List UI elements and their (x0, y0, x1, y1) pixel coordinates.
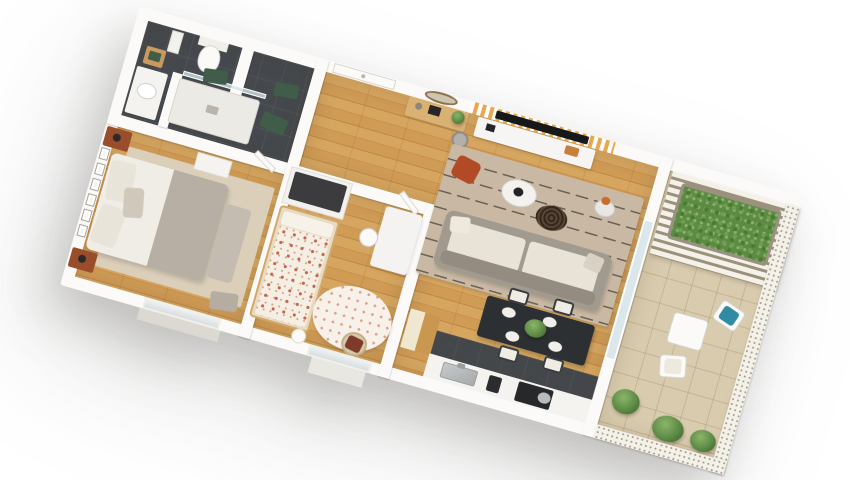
floorplan-canvas (0, 0, 850, 480)
bedroom-towels (209, 291, 239, 313)
white-chair-cushion (664, 358, 682, 374)
sofa-pillow-left (449, 216, 471, 234)
apartment-plan (60, 6, 803, 475)
bed-throw-pillow (122, 187, 144, 218)
